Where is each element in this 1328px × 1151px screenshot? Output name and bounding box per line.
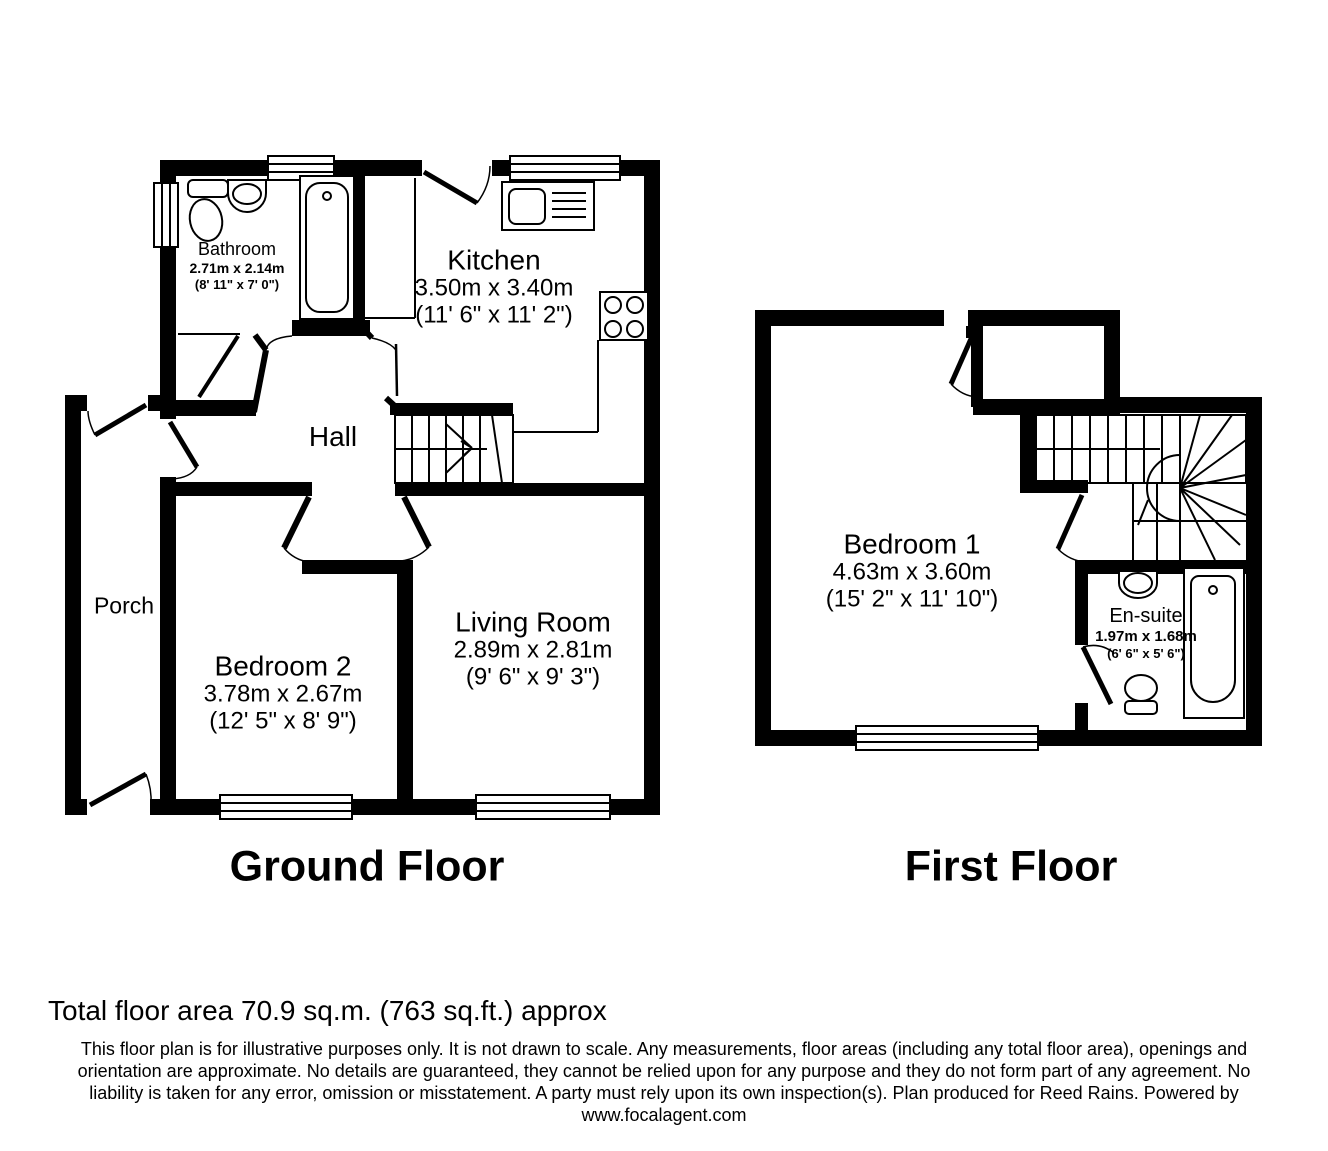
room-dim-imperial: (12' 5" x 8' 9") xyxy=(204,709,363,736)
sink-icon xyxy=(228,180,266,212)
room-name: Living Room xyxy=(454,606,613,637)
disclaimer-line: liability is taken for any error, omissi… xyxy=(0,1082,1328,1104)
room-dim-metric: 2.89m x 2.81m xyxy=(454,638,613,665)
room-label-porch: Porch xyxy=(94,593,154,620)
room-name: Bedroom 2 xyxy=(204,650,363,681)
room-dim-metric: 2.71m x 2.14m xyxy=(190,260,285,277)
room-label-ensuite: En-suite 1.97m x 1.68m (6' 6" x 5' 6") xyxy=(1095,604,1197,662)
window-icon xyxy=(154,183,178,247)
floorplan-drawing xyxy=(0,0,1328,1151)
sink-icon xyxy=(1119,571,1157,598)
disclaimer-line: This floor plan is for illustrative purp… xyxy=(0,1038,1328,1060)
room-dim-metric: 3.50m x 3.40m xyxy=(415,276,574,303)
room-label-bedroom1: Bedroom 1 4.63m x 3.60m (15' 2" x 11' 10… xyxy=(826,528,999,613)
room-label-living-room: Living Room 2.89m x 2.81m (9' 6" x 9' 3"… xyxy=(454,606,613,691)
room-dim-imperial: (6' 6" x 5' 6") xyxy=(1095,646,1197,662)
hob-icon xyxy=(600,292,648,340)
room-label-hall: Hall xyxy=(309,421,357,453)
room-dim-imperial: (9' 6" x 9' 3") xyxy=(454,665,613,692)
room-dim-imperial: (11' 6" x 11' 2") xyxy=(415,303,574,330)
room-dim-metric: 1.97m x 1.68m xyxy=(1095,628,1197,646)
bathroom-door-icon xyxy=(199,336,238,397)
toilet-icon xyxy=(1125,675,1157,714)
room-name: Hall xyxy=(309,421,357,453)
floorplan-page: Bathroom 2.71m x 2.14m (8' 11" x 7' 0") … xyxy=(0,0,1328,1151)
ground-floor-title: Ground Floor xyxy=(230,843,505,892)
bath-icon xyxy=(300,176,354,319)
room-dim-imperial: (15' 2" x 11' 10") xyxy=(826,587,999,614)
disclaimer-line: orientation are approximate. No details … xyxy=(0,1060,1328,1082)
kitchen-sink-icon xyxy=(502,182,594,230)
toilet-icon xyxy=(186,180,228,244)
stairs-icon xyxy=(395,415,513,483)
room-name: Kitchen xyxy=(415,244,574,275)
landing-door-icon xyxy=(1058,495,1086,562)
first-door-openings xyxy=(944,308,968,328)
room-name: Porch xyxy=(94,593,154,620)
room-dim-metric: 3.78m x 2.67m xyxy=(204,682,363,709)
room-label-kitchen: Kitchen 3.50m x 3.40m (11' 6" x 11' 2") xyxy=(415,244,574,329)
disclaimer-text: This floor plan is for illustrative purp… xyxy=(0,1038,1328,1126)
window-icon xyxy=(856,726,1038,750)
room-label-bedroom2: Bedroom 2 3.78m x 2.67m (12' 5" x 8' 9") xyxy=(204,650,363,735)
window-icon xyxy=(510,156,620,180)
room-name: En-suite xyxy=(1095,604,1197,628)
window-icon xyxy=(476,795,610,819)
room-name: Bedroom 1 xyxy=(826,528,999,559)
room-label-bathroom: Bathroom 2.71m x 2.14m (8' 11" x 7' 0") xyxy=(190,239,285,293)
room-dim-imperial: (8' 11" x 7' 0") xyxy=(190,277,285,293)
total-floor-area-text: Total floor area 70.9 sq.m. (763 sq.ft.)… xyxy=(48,995,607,1027)
first-floor-title: First Floor xyxy=(905,843,1118,892)
room-dim-metric: 4.63m x 3.60m xyxy=(826,560,999,587)
room-name: Bathroom xyxy=(190,239,285,260)
window-icon xyxy=(220,795,352,819)
disclaimer-line: www.focalagent.com xyxy=(0,1104,1328,1126)
